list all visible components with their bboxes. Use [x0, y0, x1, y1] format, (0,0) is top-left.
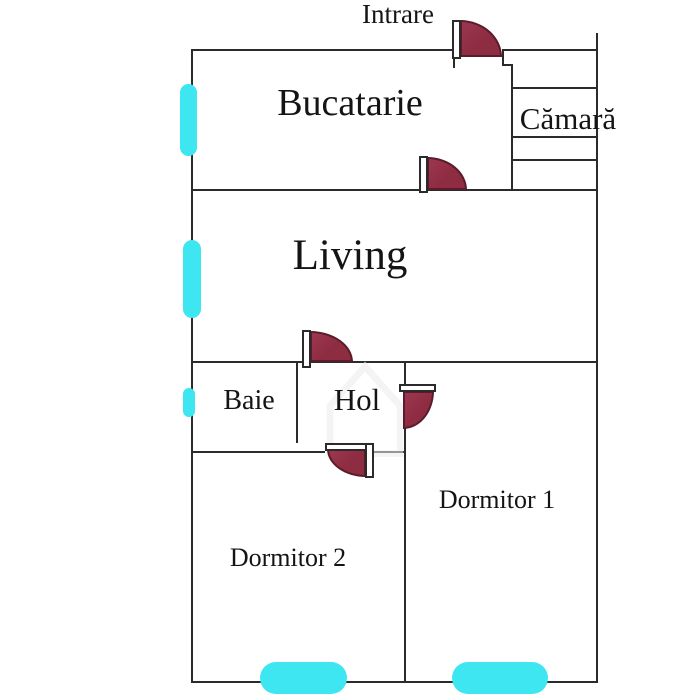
door-bedroom1-leaf: [399, 384, 436, 392]
wall-hall-bedroom2-left: [191, 451, 325, 453]
room-label-pantry: Cămară: [520, 103, 616, 136]
room-label-hallway: Hol: [334, 384, 381, 417]
door-bedroom2-leaf: [365, 443, 374, 478]
pantry-shelf: [511, 136, 598, 138]
wall-kitchen-living: [191, 189, 598, 191]
wall-bath-hall-divider: [296, 363, 298, 443]
window-kitchen: [180, 84, 197, 156]
window-bathroom: [183, 388, 195, 417]
door-bedroom1-swing-icon: [403, 391, 434, 429]
room-label-bedroom2: Dormitor 2: [230, 544, 346, 571]
room-label-living: Living: [293, 233, 408, 278]
window-living: [183, 240, 201, 318]
room-label-bathroom: Baie: [223, 386, 274, 415]
door-kitchen-leaf: [419, 156, 428, 193]
floor-plan: ⌂ Intrare Bucatarie Cămară Living Baie H…: [0, 0, 700, 700]
door-entrance-leaf: [452, 20, 461, 59]
wall-top-left-segment: [191, 49, 455, 51]
door-entrance-swing-icon: [460, 20, 502, 57]
wall-top-right-segment: [502, 49, 598, 51]
room-label-bedroom1: Dormitor 1: [439, 486, 555, 513]
door-kitchen-swing-icon: [427, 157, 467, 190]
pantry-shelf: [511, 159, 598, 161]
pantry-shelf: [511, 87, 598, 89]
window-bedroom1: [452, 662, 548, 694]
wall-pantry-left: [511, 64, 513, 191]
room-label-entrance: Intrare: [362, 0, 434, 28]
door-living-leaf: [302, 330, 311, 368]
room-label-kitchen: Bucatarie: [277, 84, 423, 124]
window-bedroom2: [260, 662, 347, 694]
